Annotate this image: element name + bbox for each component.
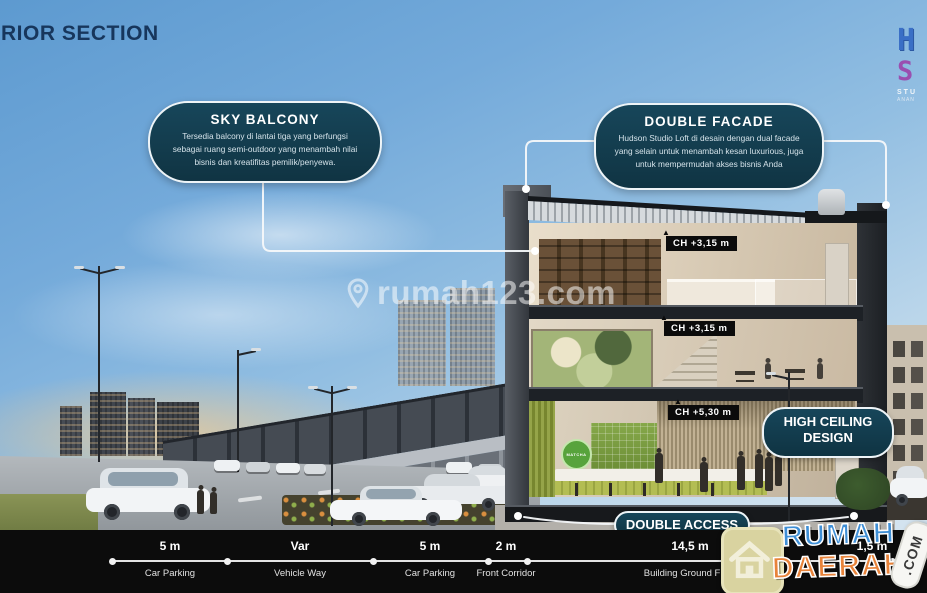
pedestrian xyxy=(775,456,782,486)
pedestrian xyxy=(755,454,763,488)
sky-balcony-title: SKY BALCONY xyxy=(150,112,380,127)
car-right-clipped xyxy=(890,466,927,510)
house-icon xyxy=(724,530,775,586)
ceiling-height-label-gf: CH +5,30 m xyxy=(668,405,739,420)
neighbor-windows xyxy=(893,337,905,487)
street-lamp-head xyxy=(115,266,125,269)
seated-person xyxy=(817,363,823,379)
double-facade-left-connector xyxy=(526,141,600,185)
bush xyxy=(836,468,890,510)
footer-logo-daerah: DAERAH xyxy=(771,548,906,587)
ceiling-height-label-2f: CH +3,15 m xyxy=(664,321,735,336)
seated-person xyxy=(765,363,771,379)
car-wheel xyxy=(426,512,440,526)
watermark: rumah123.com xyxy=(344,274,616,312)
pedestrian xyxy=(197,490,204,514)
hudson-studio-logo: H S STU ANAN xyxy=(897,26,927,103)
section-right-column xyxy=(857,203,887,507)
dimension-label: Car Parking xyxy=(405,568,455,579)
pedestrian-head xyxy=(211,487,216,492)
dimension-value: Var xyxy=(291,539,310,553)
matcha-sign: MATCHA xyxy=(561,439,592,470)
double-facade-title: DOUBLE FACADE xyxy=(596,114,822,129)
car-windows xyxy=(366,489,416,499)
green-slat-wall xyxy=(529,401,555,497)
person-head xyxy=(766,358,771,363)
pedestrian xyxy=(210,492,217,514)
exterior-section-poster: RIOR SECTION xyxy=(0,0,927,593)
high-ceiling-line2: DESIGN xyxy=(764,430,892,446)
sky-balcony-body: Tersedia balcony di lantai tiga yang ber… xyxy=(150,127,380,169)
car-windows xyxy=(108,472,178,486)
double-facade-body: Hudson Studio Loft di desain dengan dual… xyxy=(596,129,822,171)
street-lamp-head xyxy=(74,266,84,269)
person-head xyxy=(818,358,823,363)
street-lamp-pole xyxy=(237,350,239,472)
dimension-label: Front Corridor xyxy=(476,568,535,579)
city-tower xyxy=(60,406,82,456)
pedestrian xyxy=(737,456,745,490)
ceiling-height-label-3f: CH +3,15 m xyxy=(666,236,737,251)
street-lamp-pole xyxy=(98,266,100,462)
neighbor-windows xyxy=(911,337,923,487)
customer xyxy=(765,457,773,491)
pedestrian xyxy=(700,462,708,492)
dimension-label: Car Parking xyxy=(145,568,195,579)
dimension-value: 5 m xyxy=(160,539,181,553)
pedestrian-head xyxy=(739,451,744,456)
section-left-column xyxy=(505,191,529,507)
bar-stools xyxy=(575,483,578,496)
dimension-dot xyxy=(224,558,231,565)
dimension-value: 2 m xyxy=(496,539,517,553)
high-ceiling-line1: HIGH CEILING xyxy=(764,414,892,430)
door-f3 xyxy=(825,243,849,309)
car-wheel xyxy=(482,498,495,511)
car-wheel xyxy=(104,504,120,520)
logo-studio-text: STU xyxy=(897,89,927,96)
car-distant xyxy=(246,462,270,472)
watermark-text: rumah123.com xyxy=(377,274,616,312)
sky-balcony-callout: SKY BALCONY Tersedia balcony di lantai t… xyxy=(148,101,382,183)
dimension-dot xyxy=(524,558,531,565)
logo-sub-text: ANAN xyxy=(897,98,927,103)
street-lamp-head xyxy=(308,386,318,389)
car-wheel xyxy=(174,504,190,520)
shophouse-facade xyxy=(163,382,515,472)
person-head xyxy=(657,448,662,453)
pedestrian-head xyxy=(198,485,203,490)
cafe-counter-base xyxy=(555,481,767,495)
dimension-label: Vehicle Way xyxy=(274,568,326,579)
city-tower xyxy=(90,392,126,456)
dimension-value: 14,5 m xyxy=(671,539,708,553)
dimension-dot xyxy=(370,558,377,565)
page-title: RIOR SECTION xyxy=(1,22,159,46)
car-mpv xyxy=(86,468,210,520)
double-facade-callout: DOUBLE FACADE Hudson Studio Loft di desa… xyxy=(594,103,824,190)
pedestrian-head xyxy=(757,449,762,454)
dimension-dot xyxy=(485,558,492,565)
pedestrian-head xyxy=(702,457,707,462)
logo-letter-s: S xyxy=(897,58,927,85)
street-lamp-head xyxy=(766,372,776,375)
car-distant xyxy=(214,460,240,471)
barista xyxy=(655,453,663,483)
street-lamp-head xyxy=(251,348,261,351)
cafe-table xyxy=(735,371,755,375)
matcha-sign-text: MATCHA xyxy=(566,452,586,457)
car-wheel xyxy=(896,494,908,506)
city-tower xyxy=(128,398,155,456)
car-distant xyxy=(276,463,300,473)
car-body xyxy=(890,478,927,498)
logo-letter-h: H xyxy=(897,26,927,56)
dimension-value: 5 m xyxy=(420,539,441,553)
map-pin-icon xyxy=(344,277,372,309)
wall-mural xyxy=(531,329,653,389)
high-ceiling-pill: HIGH CEILING DESIGN xyxy=(762,407,894,458)
car-sedan-a xyxy=(330,486,462,528)
car-wheel xyxy=(352,512,366,526)
car-distant xyxy=(304,464,326,474)
water-tank xyxy=(818,189,845,215)
dimension-dot xyxy=(109,558,116,565)
staircase xyxy=(655,333,717,387)
car-body xyxy=(330,500,462,520)
green-tile-wall xyxy=(591,423,657,469)
street-lamp-head xyxy=(347,386,357,389)
grass-median xyxy=(0,494,98,534)
